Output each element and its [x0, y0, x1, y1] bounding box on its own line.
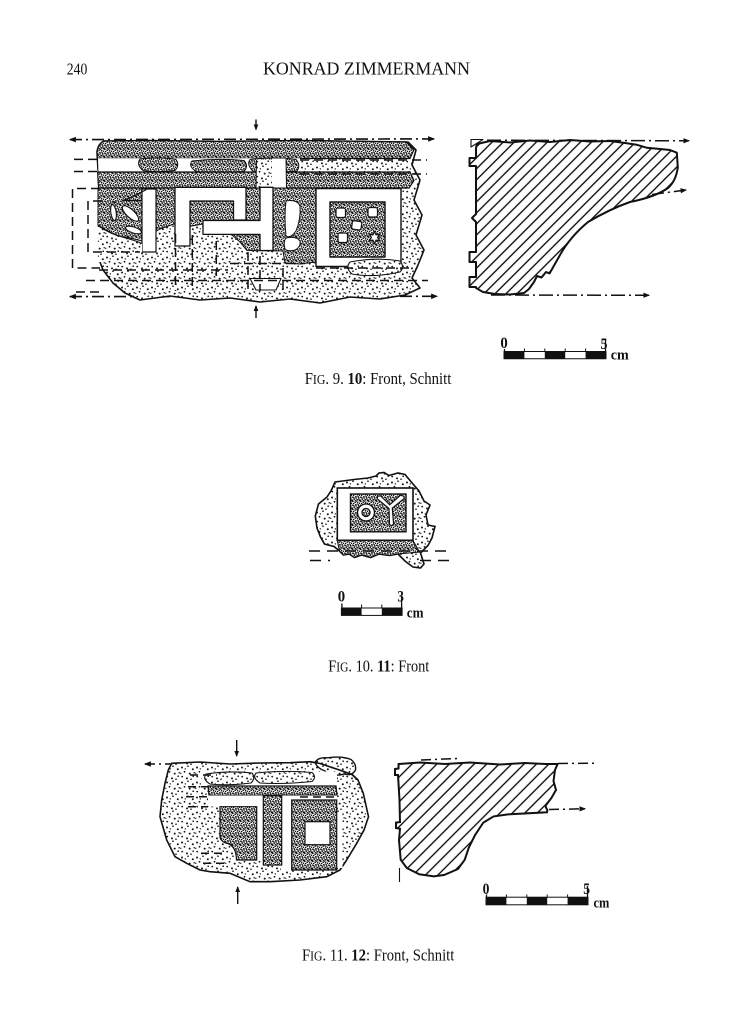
- svg-text:0: 0: [500, 335, 507, 352]
- svg-text:cm: cm: [594, 895, 610, 911]
- svg-text:0: 0: [483, 881, 490, 898]
- svg-text:FIG. 10. 11: Front: FIG. 10. 11: Front: [328, 657, 429, 676]
- svg-text:3: 3: [397, 588, 404, 605]
- svg-text:5: 5: [583, 881, 590, 898]
- svg-text:cm: cm: [407, 605, 424, 621]
- svg-text:FIG. 9. 10: Front, Schnitt: FIG. 9. 10: Front, Schnitt: [305, 369, 452, 388]
- svg-text:240: 240: [67, 60, 88, 79]
- svg-text:cm: cm: [611, 348, 629, 364]
- svg-text:5: 5: [601, 336, 608, 353]
- svg-text:FIG. 11. 12: Front, Schnitt: FIG. 11. 12: Front, Schnitt: [302, 945, 455, 964]
- svg-text:0: 0: [338, 588, 345, 605]
- svg-text:KONRAD ZIMMERMANN: KONRAD ZIMMERMANN: [263, 59, 470, 79]
